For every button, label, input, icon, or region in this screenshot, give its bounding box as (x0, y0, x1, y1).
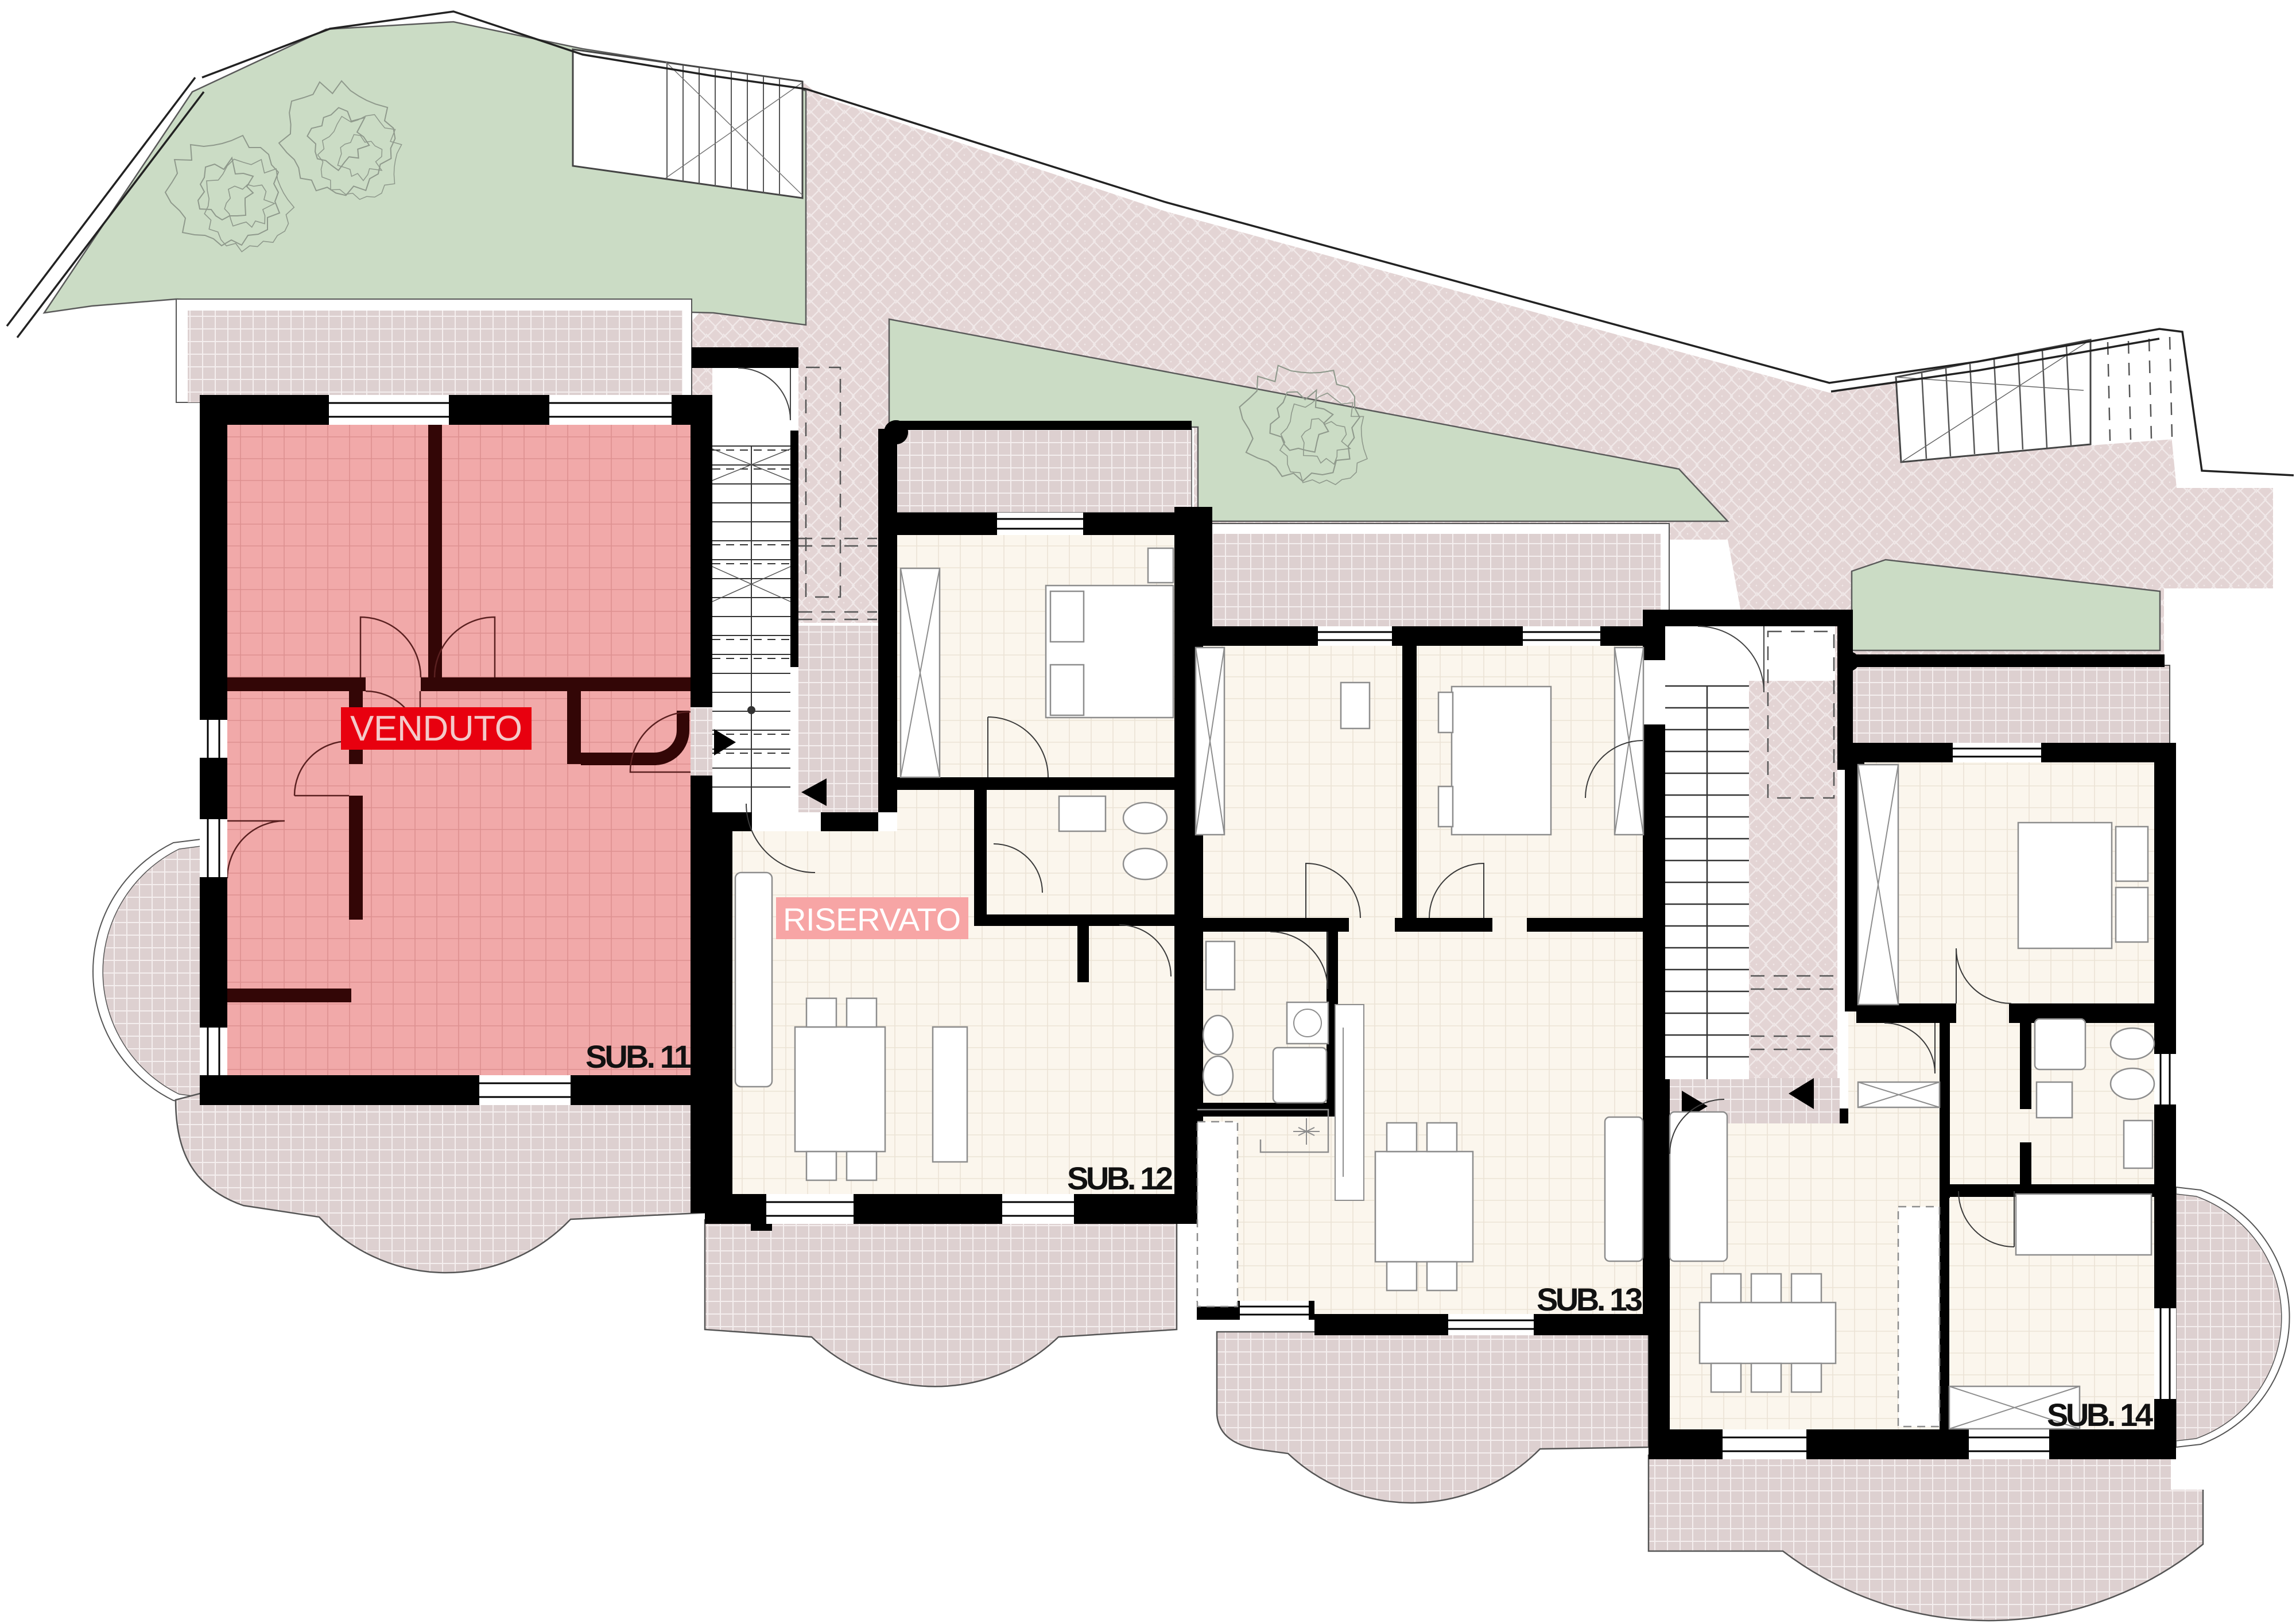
svg-text:SUB. 13: SUB. 13 (1537, 1281, 1643, 1317)
svg-text:SUB. 11: SUB. 11 (585, 1038, 692, 1075)
svg-text:SUB. 12: SUB. 12 (1067, 1160, 1173, 1196)
svg-text:VENDUTO: VENDUTO (350, 709, 522, 749)
svg-text:SUB. 14: SUB. 14 (2047, 1397, 2153, 1433)
svg-text:RISERVATO: RISERVATO (783, 901, 961, 937)
